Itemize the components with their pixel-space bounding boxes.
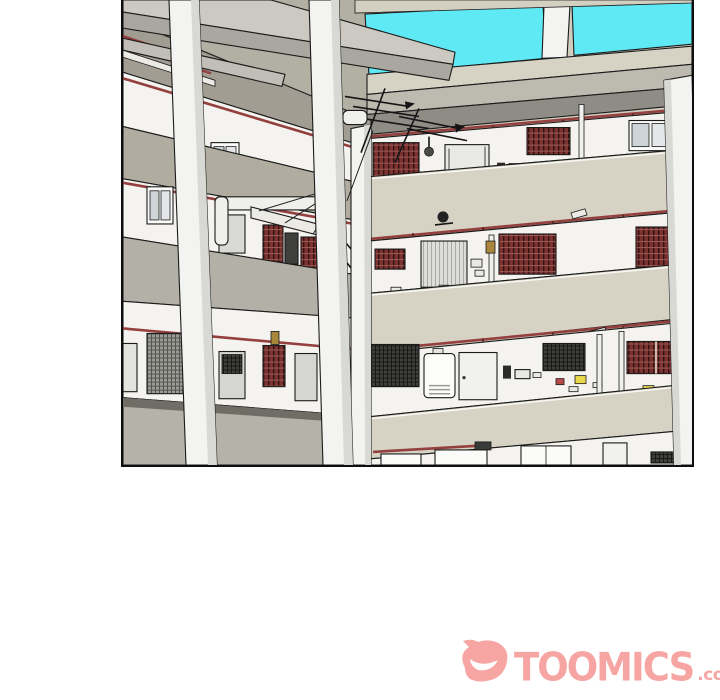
lattice-window xyxy=(499,234,556,274)
toomics-wordmark: TOOMICS xyxy=(514,648,693,687)
sky-roof-post xyxy=(542,5,570,58)
window-top xyxy=(381,454,421,465)
door xyxy=(459,353,497,400)
gas-valve xyxy=(271,331,279,344)
red-switch xyxy=(556,379,564,385)
devil-face-icon xyxy=(456,638,510,686)
gas-valve xyxy=(486,241,495,253)
yellow-box xyxy=(575,376,586,384)
mesh-window xyxy=(543,343,585,370)
lattice-window xyxy=(263,345,285,386)
lattice-vent xyxy=(375,249,405,269)
door xyxy=(123,343,137,391)
door xyxy=(295,354,317,401)
water-heater xyxy=(424,348,455,397)
panel-illustration xyxy=(123,0,692,465)
white-window xyxy=(147,187,173,224)
door-top xyxy=(603,443,627,465)
door xyxy=(219,352,245,399)
comic-panel xyxy=(121,0,694,467)
toomics-logo: TOOMICS .com xyxy=(456,638,720,686)
dark-door xyxy=(285,233,298,264)
lattice-door xyxy=(263,225,283,262)
lattice-window xyxy=(527,128,570,155)
window-top xyxy=(435,450,487,465)
right-facade xyxy=(366,46,692,465)
gray-mesh-window xyxy=(147,333,183,393)
mesh-window xyxy=(366,344,419,386)
toomics-domain-suffix: .com xyxy=(697,667,720,684)
slat-door xyxy=(421,241,467,287)
page: { "page": {"width": 720, "height": 700, … xyxy=(0,0,720,700)
cctv-camera-icon xyxy=(425,147,434,156)
vent-fan-icon xyxy=(438,211,449,222)
